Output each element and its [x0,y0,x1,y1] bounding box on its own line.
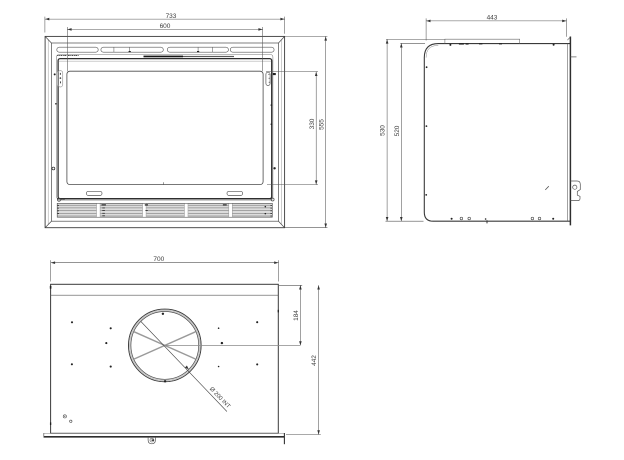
svg-text:555: 555 [318,119,325,130]
svg-text:330: 330 [309,118,316,129]
svg-text:442: 442 [311,355,318,366]
svg-text:700: 700 [153,256,164,263]
svg-text:600: 600 [160,23,171,30]
svg-text:184: 184 [293,310,300,321]
svg-text:443: 443 [487,14,498,21]
svg-text:733: 733 [166,13,177,20]
svg-text:520: 520 [394,125,401,136]
svg-text:530: 530 [380,125,387,136]
